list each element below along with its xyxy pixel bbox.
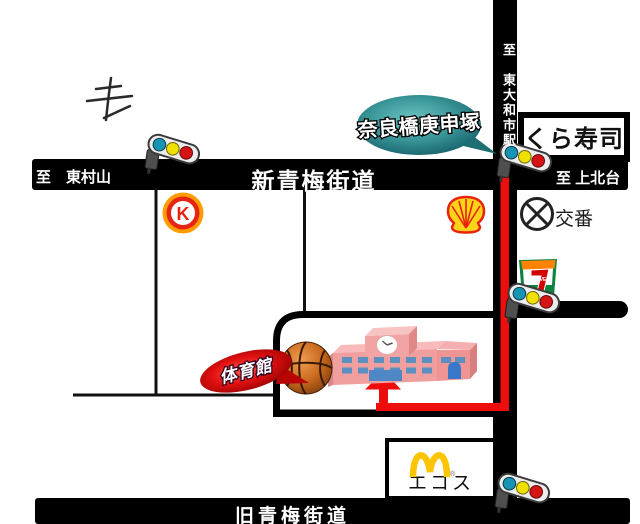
mcdonalds-reg-mark: ® bbox=[450, 470, 456, 478]
shell-icon bbox=[448, 197, 484, 233]
school-building bbox=[328, 326, 477, 387]
map-graphics: 体育館 奈良橋庚申塚 K bbox=[0, 0, 640, 524]
road-label-kyu-ome: 旧青梅街道 bbox=[220, 501, 365, 524]
mcdonalds-icon: ® bbox=[413, 455, 456, 478]
side-street-line-center bbox=[303, 188, 306, 315]
circle-k-icon: K bbox=[163, 193, 204, 234]
road-label-to-kamikitadai: 至 上北台 bbox=[556, 167, 620, 188]
access-map: くら寿司 エコス bbox=[0, 0, 640, 524]
road-label-to-higashimurayama: 至 東村山 bbox=[36, 166, 111, 187]
side-street-line-horizontal bbox=[73, 394, 277, 397]
koban-label: 交番 bbox=[555, 204, 593, 231]
traffic-light-icon bbox=[144, 132, 201, 174]
circle-k-letter: K bbox=[177, 204, 190, 224]
door-icon bbox=[448, 362, 461, 379]
intersection-bubble: 奈良橋庚申塚 bbox=[356, 95, 497, 155]
seven-eleven-wordmark: ELEVEn bbox=[530, 277, 549, 283]
hand-drawn-mark bbox=[87, 78, 132, 120]
koban-icon bbox=[522, 199, 553, 230]
side-street-line-vertical bbox=[155, 188, 158, 396]
road-label-to-station: 至 東大和市駅 bbox=[492, 36, 518, 154]
road-label-shin-ome: 新青梅街道 bbox=[236, 162, 392, 196]
traffic-light-icon bbox=[494, 471, 551, 513]
